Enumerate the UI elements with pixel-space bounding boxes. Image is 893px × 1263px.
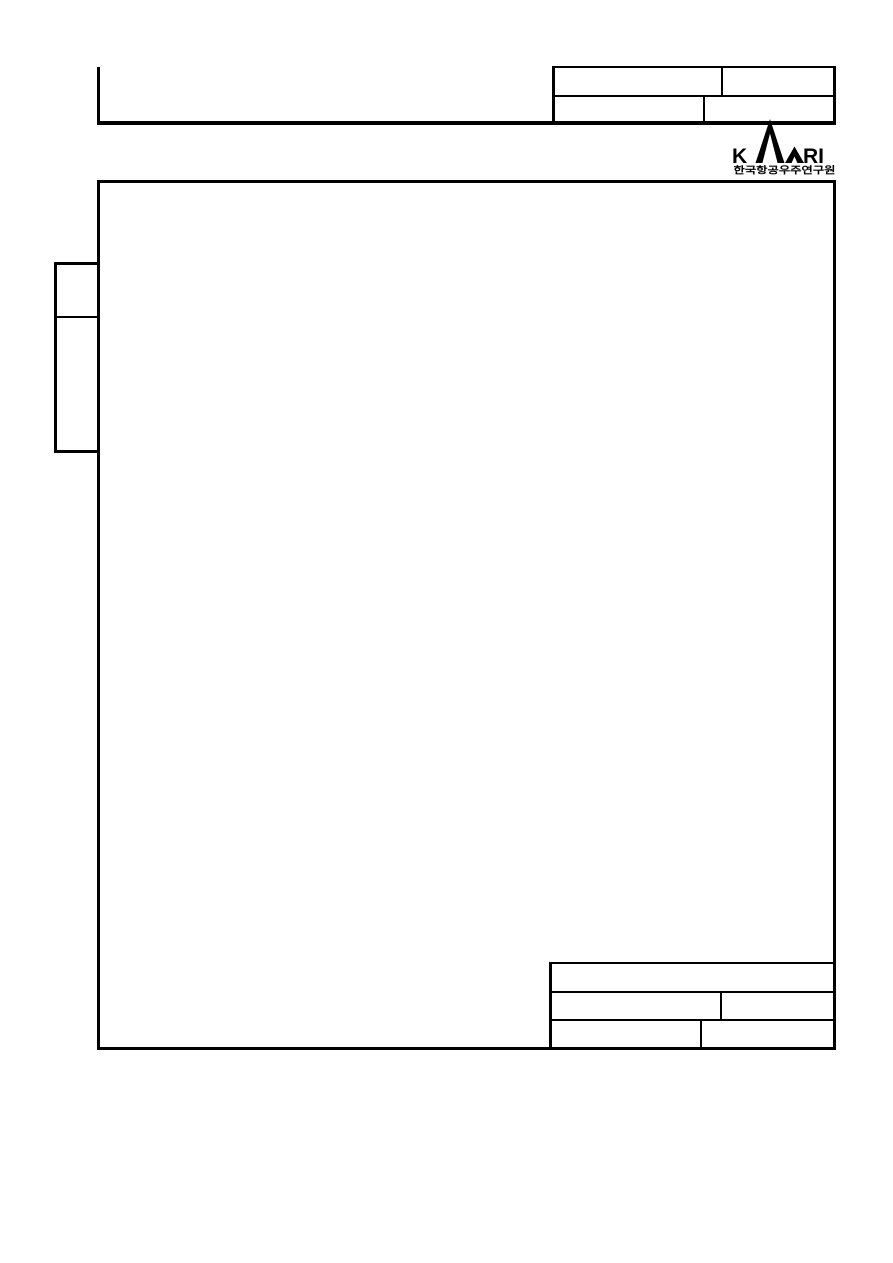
side-tab-cell	[57, 265, 98, 318]
logo-small-peak-icon	[785, 147, 804, 164]
side-tab-box	[54, 262, 98, 453]
table-row	[552, 1021, 833, 1047]
side-tab-cell	[57, 318, 98, 450]
logo-subtitle-korean: 한국항공우주연구원	[734, 165, 836, 176]
footer-table-cell	[722, 993, 833, 1019]
header-table-cell	[555, 68, 723, 95]
header-table-cell	[555, 97, 705, 121]
footer-table-cell	[552, 964, 833, 991]
footer-title-block-table	[549, 962, 833, 1047]
footer-table-cell	[552, 1021, 702, 1047]
header-left-rule	[97, 67, 100, 125]
document-page: K RI 한국항공우주연구원	[0, 0, 893, 1263]
header-bottom-rule	[97, 121, 836, 125]
footer-table-cell	[552, 993, 722, 1019]
table-row	[552, 993, 833, 1021]
document-body-frame	[97, 180, 836, 1050]
kari-logo: K RI 한국항공우주연구원	[733, 117, 836, 175]
kari-logo-icon: K RI 한국항공우주연구원	[733, 117, 836, 175]
header-revision-table	[552, 66, 836, 121]
table-row	[552, 964, 833, 993]
logo-tall-peak-icon	[756, 119, 785, 163]
footer-table-cell	[702, 1021, 833, 1047]
header-table-cell	[723, 68, 833, 95]
table-row	[555, 68, 833, 97]
